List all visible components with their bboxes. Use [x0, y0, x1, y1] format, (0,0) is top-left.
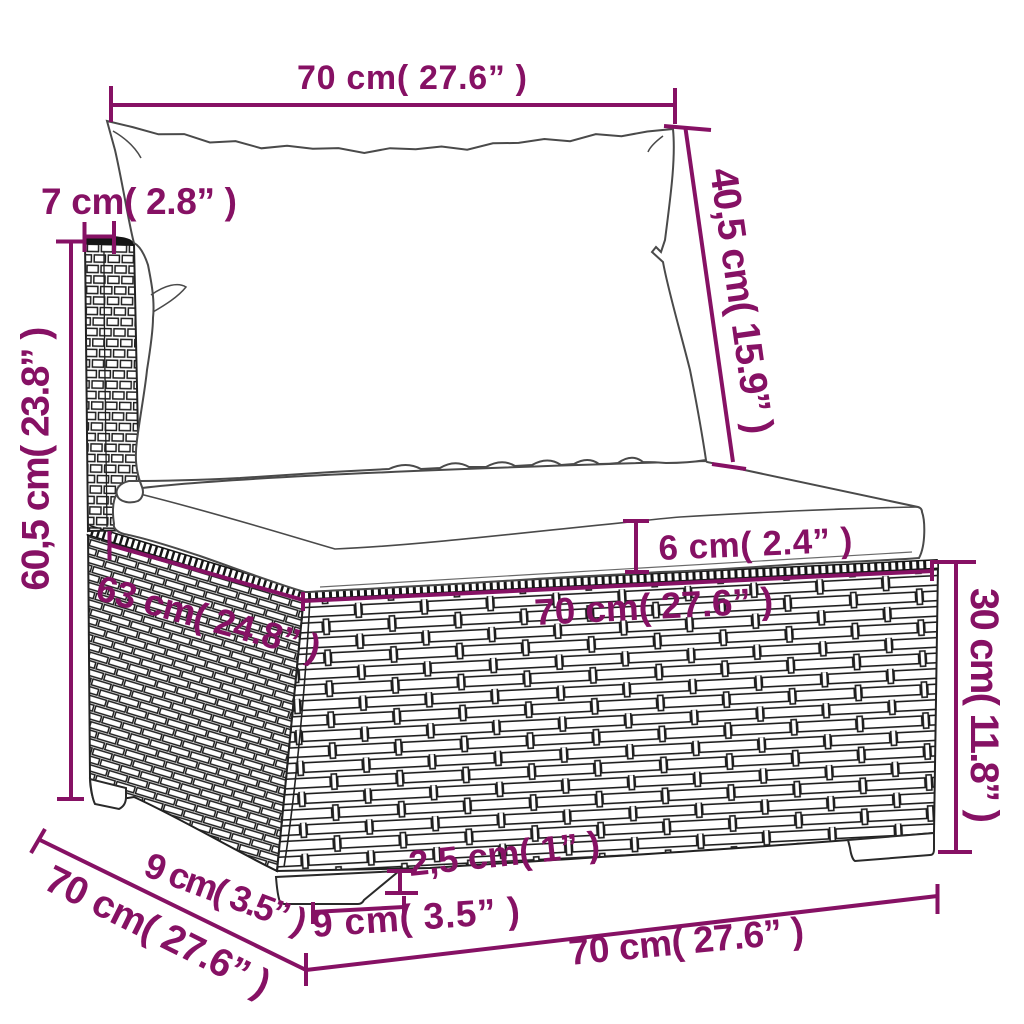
svg-text:30 cm( 11.8” ): 30 cm( 11.8” )	[962, 588, 1006, 823]
svg-text:7 cm( 2.8” ): 7 cm( 2.8” )	[41, 181, 237, 222]
svg-text:60,5 cm( 23.8” ): 60,5 cm( 23.8” )	[15, 327, 58, 591]
svg-text:70 cm( 27.6” ): 70 cm( 27.6” )	[297, 59, 527, 97]
